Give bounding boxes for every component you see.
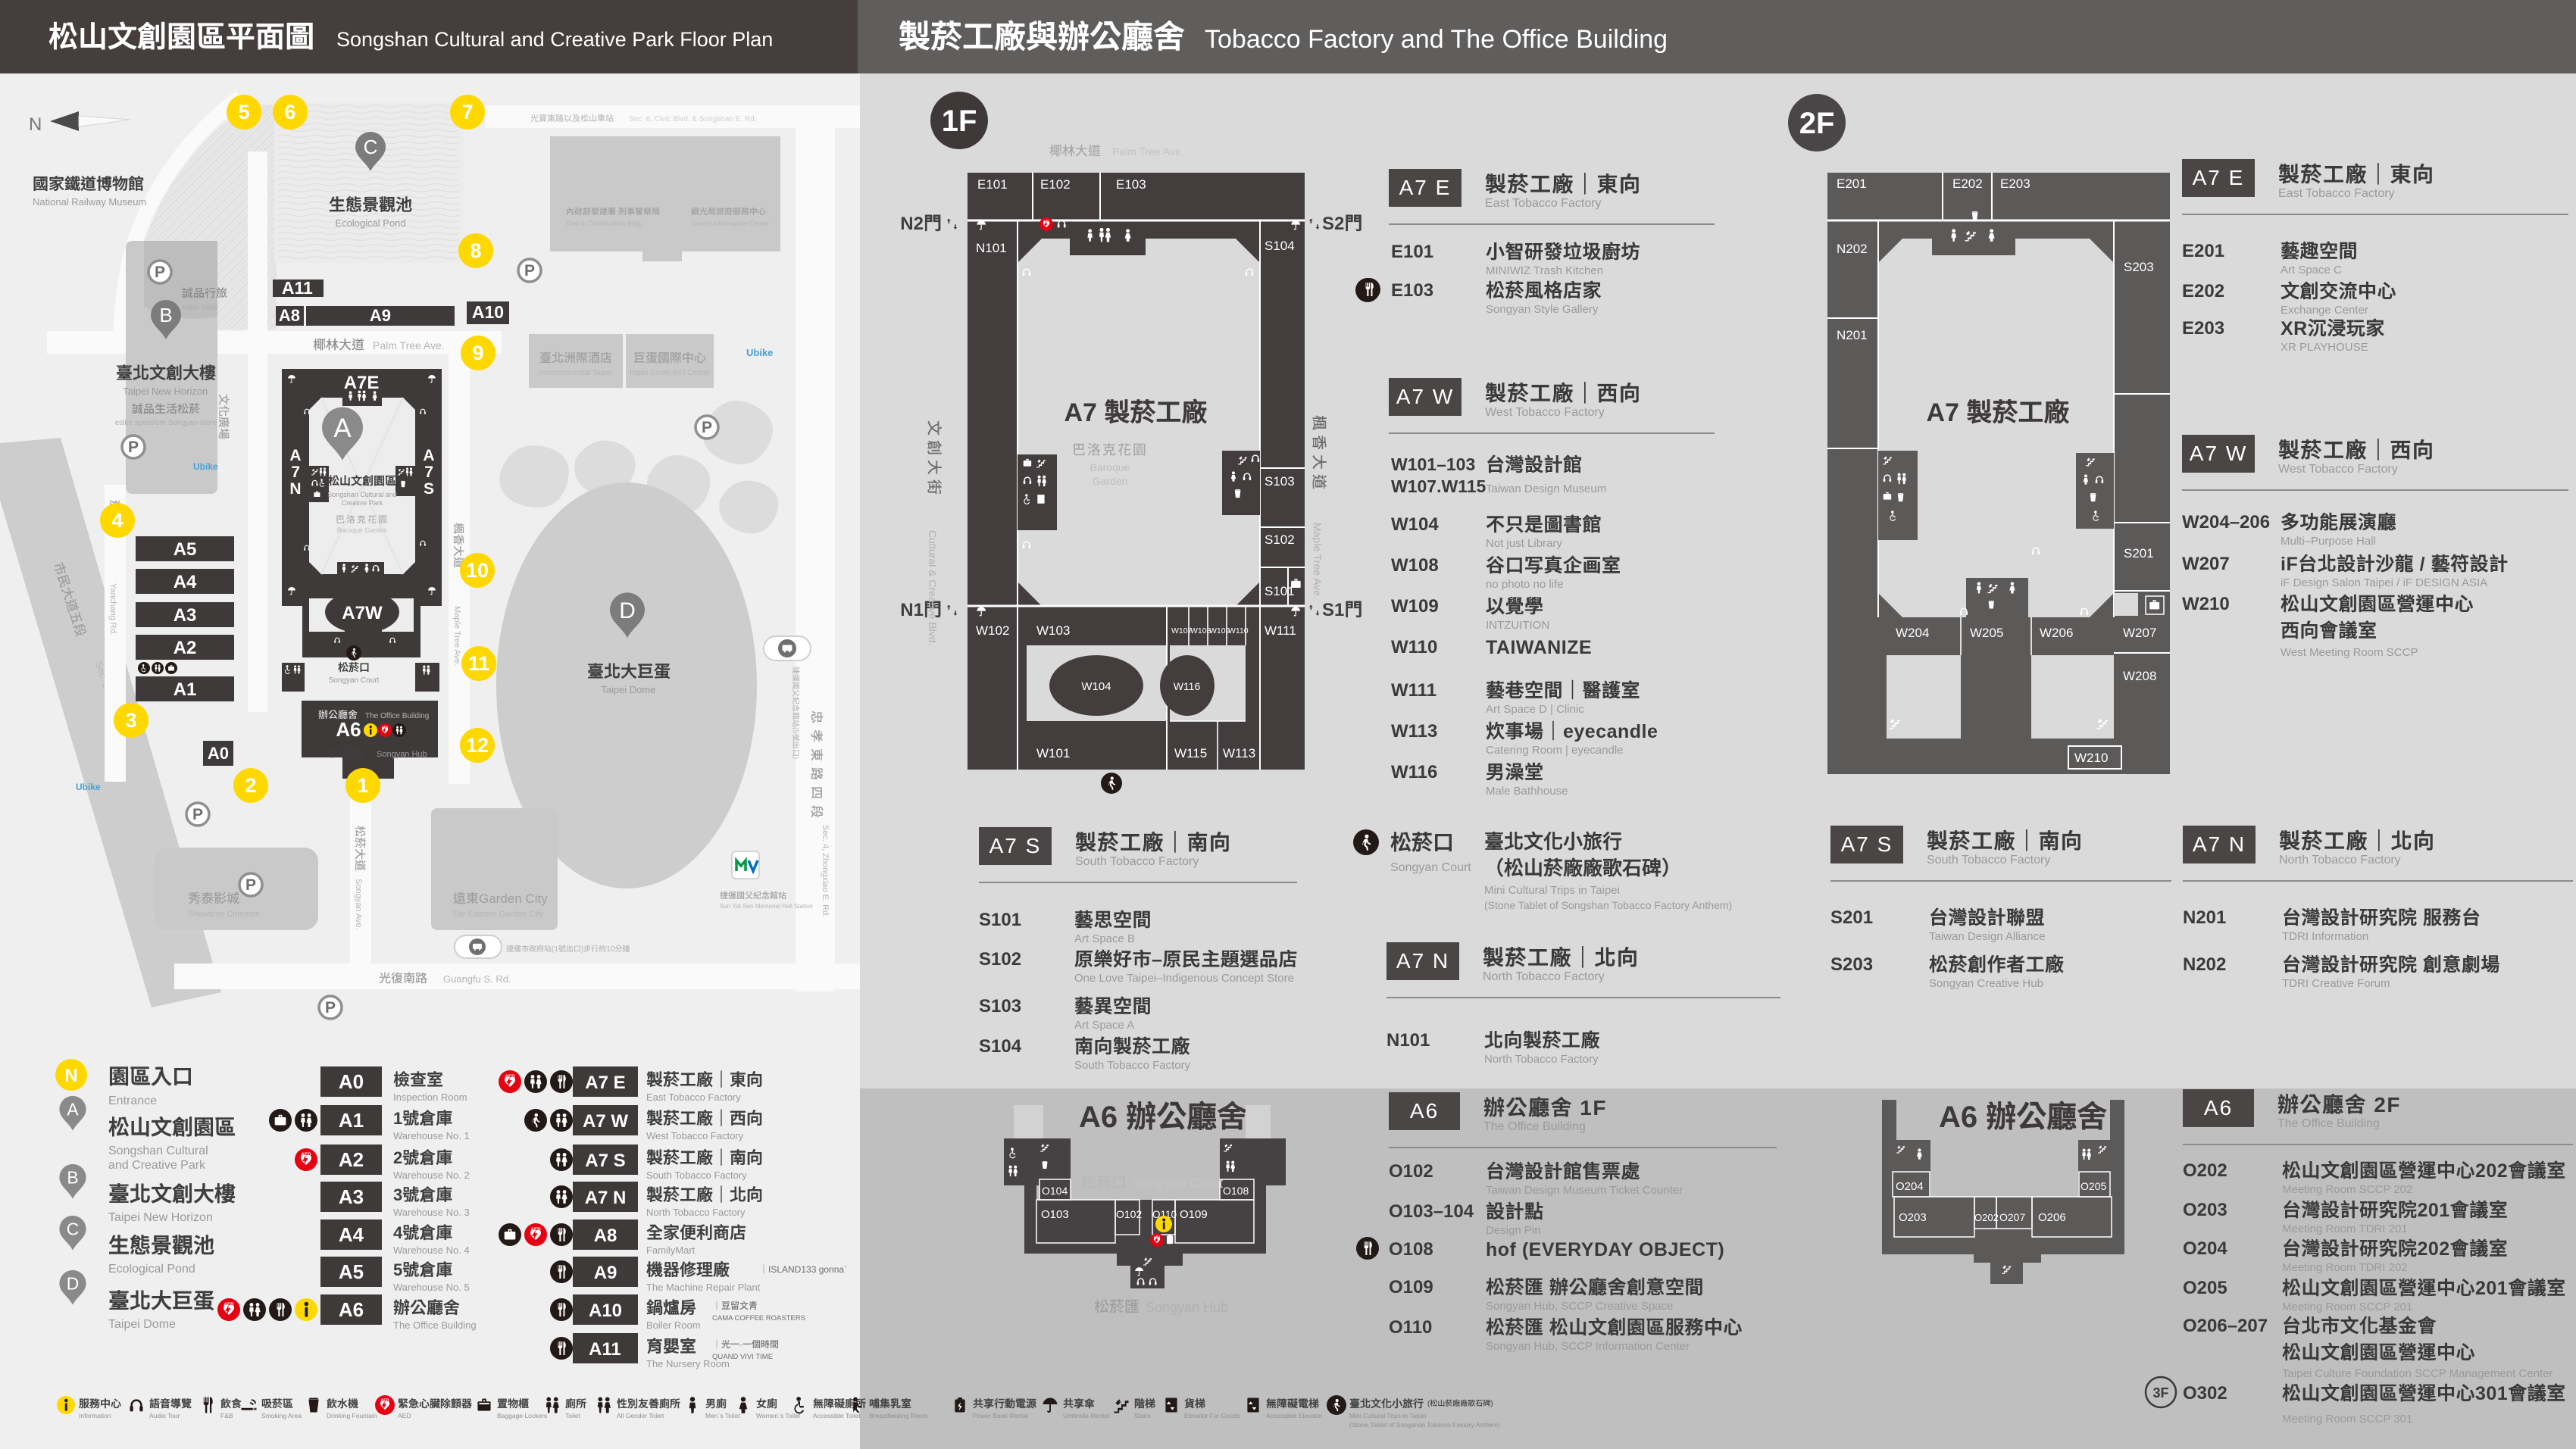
svg-text:C: C: [364, 136, 378, 158]
svg-text:East Tobacco Factory: East Tobacco Factory: [1485, 197, 1602, 210]
svg-text:Taipei Dome: Taipei Dome: [601, 684, 655, 695]
svg-text:Songyan Hub, SCCP Creative Spa: Songyan Hub, SCCP Creative Space: [1486, 1300, 1673, 1313]
svg-text:S101: S101: [1265, 584, 1295, 598]
svg-text:W115: W115: [1174, 746, 1207, 760]
svg-text:Breastfeeding Room: Breastfeeding Room: [869, 1412, 928, 1419]
svg-text:O202: O202: [1974, 1212, 1999, 1223]
svg-text:AED: AED: [224, 1302, 234, 1307]
svg-text:Meeting Room TDRI 202: Meeting Room TDRI 202: [2282, 1261, 2408, 1274]
svg-text:Warehouse No. 4: Warehouse No. 4: [393, 1244, 470, 1256]
svg-text:iF Design Salon Taipei / iF DE: iF Design Salon Taipei / iF DESIGN ASIA: [2281, 576, 2487, 589]
svg-text:W107: W107: [1171, 626, 1193, 635]
svg-text:O110: O110: [1389, 1317, 1432, 1338]
svg-text:A7W: A7W: [342, 603, 383, 623]
svg-text:W113: W113: [1391, 721, 1437, 742]
svg-text:O103: O103: [1041, 1208, 1069, 1221]
svg-text:A8: A8: [594, 1226, 617, 1246]
svg-text:hof (EVERYDAY OBJECT): hof (EVERYDAY OBJECT): [1486, 1239, 1724, 1260]
svg-text:Multi–Purpose Hall: Multi–Purpose Hall: [2281, 535, 2376, 548]
svg-text:S203: S203: [2124, 260, 2154, 274]
svg-text:A7 S: A7 S: [585, 1151, 625, 1171]
svg-text:iF: iF: [2281, 554, 2298, 575]
svg-text:A: A: [67, 1099, 79, 1119]
svg-text:Warehouse No. 2: Warehouse No. 2: [393, 1170, 470, 1181]
svg-text:7: 7: [291, 464, 300, 481]
svg-text:W101: W101: [1036, 746, 1070, 760]
svg-text:N202: N202: [1837, 242, 1868, 256]
svg-text:AED: AED: [380, 1398, 389, 1403]
svg-text:S: S: [424, 480, 434, 498]
svg-text:The Office Building: The Office Building: [365, 712, 429, 720]
svg-text:S1: S1: [1322, 600, 1344, 620]
svg-text:A6: A6: [336, 718, 361, 741]
svg-text:A5: A5: [174, 539, 197, 560]
svg-text:Songyan Court: Songyan Court: [1390, 861, 1471, 874]
svg-text:S2: S2: [1322, 214, 1344, 234]
svg-text:W109: W109: [1391, 596, 1439, 617]
svg-text:A: A: [333, 414, 352, 443]
svg-text:Taipei Culture Foundation SCCP: Taipei Culture Foundation SCCP Managemen…: [2282, 1367, 2553, 1380]
svg-text:E201: E201: [1837, 176, 1867, 191]
svg-text:E202: E202: [2182, 281, 2224, 301]
svg-text:A1: A1: [339, 1109, 364, 1132]
svg-text:Songshan Cultural and: Songshan Cultural and: [327, 491, 397, 498]
svg-text:A7 E: A7 E: [585, 1073, 625, 1093]
svg-text:Sec. 4, Zhongxiao E. Rd.: Sec. 4, Zhongxiao E. Rd.: [821, 825, 830, 917]
svg-text:A7: A7: [1927, 398, 1967, 427]
svg-text:TDRI Creative Forum: TDRI Creative Forum: [2282, 977, 2390, 990]
svg-text:W116: W116: [1391, 762, 1437, 782]
svg-text:N201: N201: [1837, 328, 1868, 342]
svg-text:A8: A8: [279, 306, 300, 325]
svg-text:P: P: [155, 264, 165, 281]
svg-text:S104: S104: [1265, 239, 1295, 253]
svg-text:Baroque: Baroque: [1090, 461, 1130, 473]
svg-text:O205: O205: [2183, 1278, 2227, 1298]
svg-text:QUAND VIVI TIME: QUAND VIVI TIME: [712, 1353, 773, 1361]
svg-text:4: 4: [393, 1223, 403, 1242]
svg-text:O108: O108: [1389, 1239, 1433, 1260]
svg-text:O207: O207: [1999, 1211, 2025, 1223]
svg-text:MINIWIZ Trash Kitchen: MINIWIZ Trash Kitchen: [1486, 264, 1603, 277]
svg-text:N101: N101: [1386, 1030, 1430, 1051]
svg-text:7: 7: [461, 101, 473, 123]
svg-text:O203: O203: [1899, 1211, 1927, 1224]
svg-text:E201: E201: [2182, 241, 2224, 261]
svg-text:N: N: [29, 114, 42, 135]
svg-text:A7 E: A7 E: [2193, 166, 2245, 189]
svg-text:Showtime Cinemas: Showtime Cinemas: [188, 910, 260, 919]
svg-text:A3: A3: [174, 605, 197, 626]
svg-text:W104: W104: [1081, 680, 1111, 693]
svg-text:A6: A6: [1410, 1099, 1439, 1123]
svg-text:Smoking Area: Smoking Area: [261, 1412, 302, 1419]
svg-text:A11: A11: [589, 1339, 621, 1360]
svg-text:N: N: [289, 480, 301, 498]
svg-text:B: B: [67, 1167, 78, 1187]
svg-text:O206–207: O206–207: [2183, 1316, 2268, 1336]
svg-text:O205: O205: [2080, 1180, 2106, 1192]
svg-text:A6: A6: [1079, 1101, 1126, 1134]
svg-text:C: C: [67, 1219, 80, 1238]
svg-text:S201: S201: [1830, 907, 1873, 928]
svg-text:A10: A10: [589, 1301, 622, 1321]
svg-text:Songyan Ave.: Songyan Ave.: [354, 879, 363, 930]
svg-text:7: 7: [424, 464, 433, 481]
svg-text:National Railway Museum: National Railway Museum: [33, 196, 146, 208]
svg-text:eyecandle: eyecandle: [1563, 721, 1658, 742]
svg-text:2: 2: [393, 1148, 402, 1167]
svg-text:W101–103: W101–103: [1391, 454, 1475, 474]
svg-text:East Tobacco Factory: East Tobacco Factory: [2278, 187, 2395, 200]
svg-text:W204–206: W204–206: [2182, 512, 2270, 532]
svg-text:3: 3: [393, 1185, 402, 1204]
svg-text:Stairs: Stairs: [1134, 1412, 1151, 1419]
svg-text:no photo no life: no photo no life: [1486, 578, 1564, 591]
svg-text:A0: A0: [208, 744, 229, 763]
svg-text:W207: W207: [2182, 554, 2230, 574]
svg-text:S103: S103: [979, 996, 1021, 1016]
svg-text:1F: 1F: [1573, 1096, 1607, 1120]
svg-text:XR PLAYHOUSE: XR PLAYHOUSE: [2281, 341, 2368, 354]
svg-text:W210: W210: [2182, 594, 2230, 614]
svg-text:A4: A4: [174, 572, 197, 592]
svg-text:INTZUITION: INTZUITION: [1486, 619, 1549, 632]
svg-text:S103: S103: [1265, 474, 1295, 489]
svg-text:Songyan Court: Songyan Court: [329, 676, 380, 685]
svg-text:West Tobacco Factory: West Tobacco Factory: [1485, 406, 1605, 419]
svg-text:N1: N1: [900, 600, 924, 620]
svg-text:Tourist Information Center: Tourist Information Center: [691, 220, 770, 227]
svg-text:East Tobacco Factory: East Tobacco Factory: [646, 1091, 741, 1103]
svg-text:A5: A5: [339, 1260, 364, 1283]
svg-text:FamilyMart: FamilyMart: [646, 1244, 696, 1256]
svg-text:Palm Tree Ave.: Palm Tree Ave.: [1112, 145, 1184, 158]
svg-text:Men`s Toilet: Men`s Toilet: [705, 1412, 740, 1419]
svg-text:Palm Tree Ave.: Palm Tree Ave.: [373, 339, 445, 351]
svg-text:W205: W205: [1970, 626, 2003, 640]
svg-text:The Machine Repair Plant: The Machine Repair Plant: [646, 1282, 761, 1293]
svg-text:A7 S: A7 S: [1841, 832, 1893, 856]
svg-text:North Tobacco Factory: North Tobacco Factory: [646, 1207, 746, 1218]
svg-text:1F: 1F: [942, 105, 977, 138]
svg-text:TAIWANIZE: TAIWANIZE: [1486, 637, 1592, 658]
svg-text:Civil & Construction Bldg.: Civil & Construction Bldg.: [566, 220, 643, 227]
svg-text:W113: W113: [1223, 746, 1255, 760]
svg-text:Design Pin: Design Pin: [1486, 1224, 1541, 1237]
svg-text:West Meeting Room SCCP: West Meeting Room SCCP: [2281, 646, 2418, 659]
svg-text:W111: W111: [1265, 623, 1296, 638]
svg-text:W116: W116: [1174, 680, 1201, 692]
svg-text:Songshan Cultural: Songshan Cultural: [108, 1145, 208, 1157]
svg-text:O108: O108: [1223, 1185, 1249, 1197]
svg-text:Baggage Lockers: Baggage Lockers: [497, 1412, 547, 1419]
svg-text:Songyan Court: Songyan Court: [1132, 1176, 1223, 1191]
svg-text:Meeting Room SCCP 301: Meeting Room SCCP 301: [2282, 1413, 2412, 1426]
svg-text:1: 1: [357, 774, 368, 797]
svg-text:A: A: [289, 447, 301, 464]
svg-text:W110: W110: [1228, 626, 1249, 635]
svg-text:Taipei New Horizon: Taipei New Horizon: [123, 386, 208, 397]
svg-text:Mini Cultural Trips in Taipei: Mini Cultural Trips in Taipei: [1484, 884, 1620, 897]
svg-text:O302: O302: [2183, 1383, 2227, 1404]
svg-text:A4: A4: [339, 1223, 364, 1246]
svg-text:1: 1: [393, 1109, 402, 1128]
svg-text:W111: W111: [1391, 680, 1436, 701]
svg-text:O102: O102: [1116, 1208, 1142, 1220]
svg-text:A2: A2: [174, 638, 197, 658]
svg-text:Umbrella Rental: Umbrella Rental: [1063, 1412, 1109, 1419]
svg-text:N: N: [64, 1066, 77, 1086]
svg-text:Meeting Room SCCP 202: Meeting Room SCCP 202: [2282, 1183, 2412, 1196]
svg-text:(1: (1: [552, 945, 558, 954]
svg-text:P: P: [325, 999, 336, 1016]
svg-text:A6: A6: [2204, 1096, 2233, 1120]
svg-text:W207: W207: [2123, 626, 2156, 640]
svg-text:201: 201: [2418, 1200, 2450, 1221]
svg-text:AED: AED: [1154, 1235, 1160, 1238]
svg-text:Ubike: Ubike: [193, 461, 218, 472]
svg-text:North Tobacco Factory: North Tobacco Factory: [1483, 970, 1605, 983]
svg-text:A9: A9: [370, 306, 391, 325]
svg-text:S104: S104: [979, 1036, 1022, 1057]
svg-text:D: D: [619, 598, 636, 623]
svg-text:The Office Building: The Office Building: [1483, 1120, 1586, 1133]
svg-text:A7 E: A7 E: [1399, 176, 1452, 199]
svg-text:B: B: [159, 304, 172, 326]
svg-text:South Tobacco Factory: South Tobacco Factory: [646, 1170, 747, 1181]
svg-text:Taipei Dome Int`l Center: Taipei Dome Int`l Center: [629, 368, 711, 377]
svg-text:W109: W109: [1209, 626, 1230, 635]
svg-text:ISLAND133 gonna`: ISLAND133 gonna`: [768, 1264, 847, 1275]
svg-text:A7 W: A7 W: [2190, 442, 2247, 465]
svg-text:AED: AED: [382, 726, 388, 729]
svg-text:202: 202: [2418, 1238, 2450, 1260]
svg-text:AED: AED: [301, 1152, 311, 1157]
svg-text:F&B: F&B: [220, 1412, 233, 1419]
svg-text:(5: (5: [791, 727, 799, 734]
svg-text:9: 9: [472, 342, 483, 364]
svg-text:Taiwan Design Alliance: Taiwan Design Alliance: [1929, 930, 2045, 943]
svg-text:S101: S101: [979, 910, 1021, 930]
svg-text:Entrance: Entrance: [108, 1095, 157, 1107]
svg-text:W110: W110: [1391, 637, 1437, 657]
svg-text:E102: E102: [1040, 177, 1071, 192]
svg-text:Yanchang Rd.: Yanchang Rd.: [108, 583, 117, 635]
svg-text:Guangfu S. Rd.: Guangfu S. Rd.: [443, 973, 511, 985]
svg-text:5: 5: [238, 101, 249, 123]
svg-text:A1: A1: [174, 679, 197, 700]
svg-text:Meeting Room SCCP 201: Meeting Room SCCP 201: [2282, 1301, 2412, 1313]
svg-text:Mini Cultural Trips in Taipei: Mini Cultural Trips in Taipei: [1349, 1412, 1427, 1419]
svg-text:E103: E103: [1116, 177, 1146, 192]
svg-text:Ecological Pond: Ecological Pond: [335, 217, 405, 229]
svg-text:S102: S102: [1265, 532, 1295, 547]
svg-text:A: A: [423, 447, 434, 464]
svg-text:N201: N201: [2183, 907, 2226, 928]
svg-text:5: 5: [393, 1260, 402, 1279]
svg-text:O104: O104: [1042, 1185, 1068, 1197]
svg-text:12: 12: [466, 734, 489, 757]
svg-text:W107.W115: W107.W115: [1391, 476, 1486, 496]
svg-text:eslite hotel: eslite hotel: [182, 304, 218, 312]
svg-text:W102: W102: [976, 623, 1009, 638]
svg-text:W204: W204: [1896, 626, 1929, 640]
svg-text:Women`s Toilet: Women`s Toilet: [756, 1412, 801, 1419]
svg-text:Ecological Pond: Ecological Pond: [108, 1263, 195, 1276]
svg-text:O102: O102: [1389, 1161, 1433, 1182]
svg-text:Audio Tour: Audio Tour: [149, 1412, 180, 1419]
svg-text:Cultural & Creative Blvd.: Cultural & Creative Blvd.: [927, 530, 939, 646]
svg-text:Songyan Hub: Songyan Hub: [377, 750, 427, 759]
svg-text:P: P: [524, 262, 535, 279]
svg-text:Garden: Garden: [1093, 475, 1128, 487]
svg-text:Taipei New Horizon: Taipei New Horizon: [108, 1211, 213, 1224]
svg-text:Exchange Center: Exchange Center: [2281, 304, 2368, 317]
svg-text:Power Bank Rental: Power Bank Rental: [973, 1412, 1028, 1419]
svg-text:Art Space D | Clinic: Art Space D | Clinic: [1486, 703, 1584, 716]
svg-text:W206: W206: [2040, 626, 2073, 640]
svg-text:Maple Tree Ave.: Maple Tree Ave.: [452, 606, 461, 666]
svg-text:Warehouse No. 5: Warehouse No. 5: [393, 1282, 470, 1293]
svg-text:Songyan Hub: Songyan Hub: [1146, 1300, 1228, 1315]
svg-text:South Tobacco Factory: South Tobacco Factory: [1074, 1059, 1191, 1072]
svg-text:A7 W: A7 W: [1396, 385, 1454, 408]
svg-text:eslite spectrum Songyan store: eslite spectrum Songyan store: [115, 419, 217, 427]
svg-text:Sun Yat-Sen Memorial Hall Stat: Sun Yat-Sen Memorial Hall Station: [720, 903, 813, 910]
svg-text:O109: O109: [1180, 1208, 1208, 1221]
svg-text:AED: AED: [398, 1412, 411, 1419]
svg-text:Tobacco Factory and The Office: Tobacco Factory and The Office Building: [1205, 25, 1668, 54]
svg-text:A9: A9: [594, 1263, 617, 1283]
svg-text:E101: E101: [977, 177, 1008, 192]
svg-text:A7 S: A7 S: [989, 834, 1042, 857]
svg-text:Meeting Room TDRI 201: Meeting Room TDRI 201: [2282, 1223, 2408, 1235]
svg-text:201: 201: [2475, 1278, 2508, 1299]
svg-text:W210: W210: [2074, 751, 2108, 765]
svg-text:A2: A2: [339, 1148, 364, 1171]
svg-text:): ): [791, 757, 799, 759]
svg-text:Art Space C: Art Space C: [2281, 264, 2342, 276]
svg-text:Accessible Elevator: Accessible Elevator: [1266, 1412, 1322, 1419]
svg-text:O206: O206: [2038, 1211, 2066, 1224]
svg-text:Taipei Dome: Taipei Dome: [108, 1318, 176, 1331]
svg-text:Accessible Toilet: Accessible Toilet: [813, 1412, 861, 1419]
svg-text:202: 202: [2475, 1160, 2508, 1182]
svg-text:(Stone Tablet of Songshan Toba: (Stone Tablet of Songshan Tobacco Factor…: [1349, 1421, 1500, 1429]
svg-text:O103–104: O103–104: [1389, 1201, 1474, 1222]
svg-text:2F: 2F: [1799, 107, 1835, 140]
svg-text:Creative Park: Creative Park: [342, 499, 383, 507]
svg-text:Elevator For Goods: Elevator For Goods: [1184, 1412, 1240, 1419]
svg-text:2F: 2F: [2367, 1093, 2401, 1116]
svg-text:E103: E103: [1391, 280, 1433, 301]
svg-text:P: P: [702, 419, 712, 436]
svg-text:): ): [1490, 1400, 1493, 1408]
svg-text:P: P: [245, 876, 256, 894]
svg-text:Art Space B: Art Space B: [1074, 932, 1135, 945]
svg-text:E202: E202: [1952, 176, 1983, 191]
svg-text:2: 2: [245, 774, 256, 797]
svg-text:AED: AED: [1043, 220, 1049, 223]
svg-text:3F: 3F: [2153, 1385, 2169, 1401]
svg-text:Toilet: Toilet: [565, 1412, 580, 1419]
svg-text:W108: W108: [1190, 626, 1211, 635]
svg-text:O202: O202: [2183, 1160, 2227, 1181]
svg-text:Songyan Style Gallery: Songyan Style Gallery: [1486, 303, 1599, 316]
svg-text:Songshan Cultural and Creative: Songshan Cultural and Creative Park Floo…: [336, 28, 773, 51]
svg-text:P: P: [192, 806, 203, 823]
svg-text:Information: Information: [79, 1412, 111, 1419]
svg-text:N2: N2: [900, 214, 924, 234]
svg-text:A7 W: A7 W: [583, 1111, 628, 1132]
svg-text:Far Eastern Garden City: Far Eastern Garden City: [453, 910, 544, 919]
svg-text:One Love Taipei–Indigenous Con: One Love Taipei–Indigenous Concept Store: [1074, 972, 1294, 985]
svg-text:S201: S201: [2124, 546, 2154, 561]
svg-text:Warehouse No. 1: Warehouse No. 1: [393, 1130, 470, 1141]
svg-text:Taiwan Design Museum Ticket Co: Taiwan Design Museum Ticket Counter: [1486, 1184, 1683, 1197]
svg-text:N202: N202: [2183, 954, 2226, 975]
svg-text:W208: W208: [2123, 669, 2156, 683]
svg-text:A6: A6: [1939, 1101, 1986, 1134]
svg-text:Male Bathhouse: Male Bathhouse: [1486, 785, 1568, 798]
svg-text:3: 3: [125, 709, 136, 732]
svg-text:301: 301: [2475, 1383, 2508, 1404]
svg-text:/: /: [2414, 554, 2431, 575]
svg-text:(Stone Tablet of Songshan Toba: (Stone Tablet of Songshan Tobacco Factor…: [1484, 899, 1732, 911]
svg-text:Maple Tree Ave.: Maple Tree Ave.: [1311, 523, 1324, 599]
svg-text:All Gender Toilet: All Gender Toilet: [617, 1412, 664, 1419]
svg-text:West Tobacco Factory: West Tobacco Factory: [646, 1130, 744, 1141]
svg-text:Ubike: Ubike: [746, 347, 773, 358]
svg-text:XR: XR: [2281, 318, 2308, 339]
svg-text:A10: A10: [472, 302, 504, 322]
svg-text:W103: W103: [1036, 623, 1070, 638]
svg-text:O109: O109: [1389, 1277, 1433, 1298]
svg-text:4: 4: [111, 509, 123, 532]
svg-text:A0: A0: [339, 1070, 364, 1093]
svg-text:D: D: [67, 1273, 80, 1293]
svg-text:A6: A6: [339, 1298, 364, 1321]
svg-text:CAMA COFFEE ROASTERS: CAMA COFFEE ROASTERS: [712, 1314, 805, 1323]
svg-text:A7: A7: [1064, 398, 1105, 427]
svg-text:Boiler Room: Boiler Room: [646, 1319, 701, 1331]
svg-text:S102: S102: [979, 949, 1021, 970]
svg-text:Garden City: Garden City: [479, 892, 548, 906]
svg-text:The Office Building: The Office Building: [2277, 1117, 2380, 1130]
svg-text:E203: E203: [2000, 176, 2030, 191]
svg-text:AED: AED: [505, 1074, 515, 1079]
svg-text:AED: AED: [530, 1227, 541, 1232]
svg-text:W104: W104: [1391, 514, 1439, 535]
svg-text:Not just Library: Not just Library: [1486, 537, 1562, 550]
svg-text:Art Space A: Art Space A: [1074, 1019, 1134, 1032]
svg-text:Intercontinental Taipei: Intercontinental Taipei: [539, 369, 612, 377]
svg-text:A7 N: A7 N: [2193, 832, 2246, 856]
svg-text:11: 11: [468, 652, 490, 675]
svg-text:A7 N: A7 N: [585, 1188, 627, 1208]
svg-text:S203: S203: [1830, 954, 1873, 975]
svg-text:Taiwan Design Museum: Taiwan Design Museum: [1486, 482, 1606, 495]
svg-text:E203: E203: [2182, 318, 2224, 339]
svg-text:South Tobacco Factory: South Tobacco Factory: [1075, 855, 1199, 868]
svg-text:–: –: [1152, 949, 1162, 970]
svg-text:Catering Room | eyecandle: Catering Room | eyecandle: [1486, 744, 1624, 757]
svg-text:O204: O204: [2183, 1238, 2227, 1259]
svg-text:Warehouse No. 3: Warehouse No. 3: [393, 1207, 470, 1218]
svg-text:Baroque Garden: Baroque Garden: [337, 526, 388, 534]
svg-text:Sec. 6, Civic Blvd. & Songshan: Sec. 6, Civic Blvd. & Songshan E. Rd.: [629, 115, 756, 123]
